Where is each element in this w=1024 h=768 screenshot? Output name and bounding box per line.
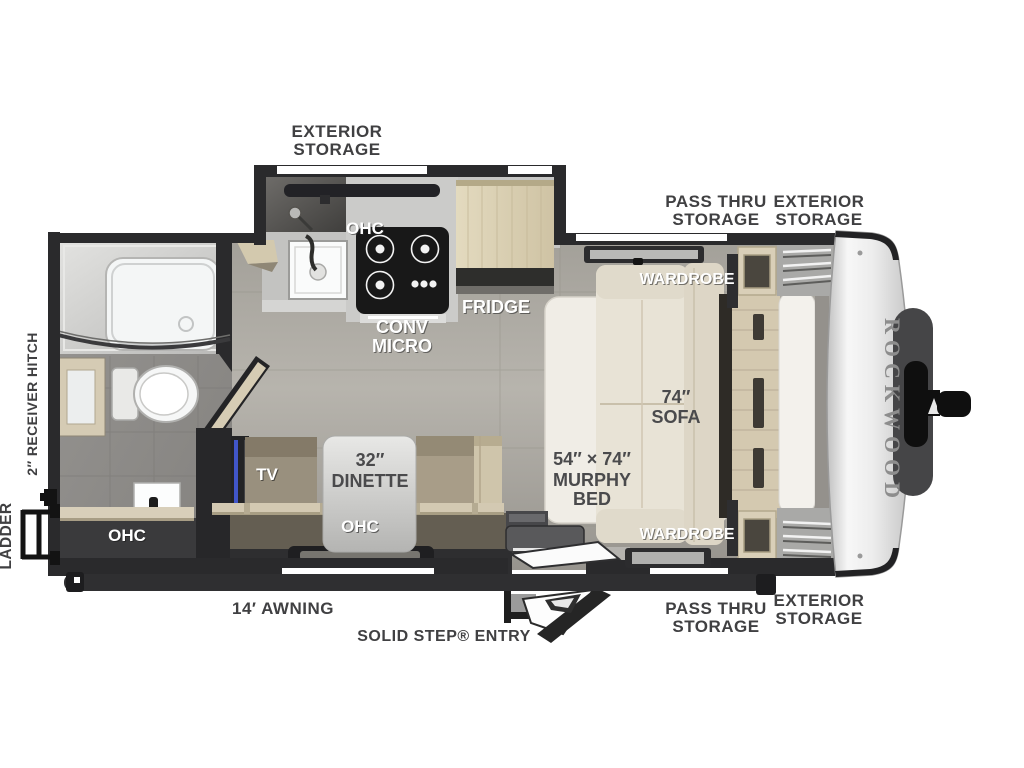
svg-text:MICRO: MICRO [372,336,432,356]
svg-text:STORAGE: STORAGE [775,609,862,628]
svg-text:OHC: OHC [346,219,384,238]
svg-text:DINETTE: DINETTE [331,471,408,491]
svg-text:EXTERIOR: EXTERIOR [774,192,865,211]
svg-text:MURPHY: MURPHY [553,470,631,490]
svg-text:EXTERIOR: EXTERIOR [774,591,865,610]
svg-text:32″: 32″ [356,450,385,470]
svg-text:74″: 74″ [662,387,691,407]
svg-text:WARDROBE: WARDROBE [639,526,734,543]
svg-text:14′ AWNING: 14′ AWNING [232,599,334,618]
svg-text:EXTERIOR: EXTERIOR [292,122,383,141]
svg-text:SOFA: SOFA [651,407,700,427]
svg-text:OHC: OHC [341,517,379,536]
svg-text:TV: TV [256,465,278,484]
svg-text:STORAGE: STORAGE [672,617,759,636]
svg-text:STORAGE: STORAGE [293,140,380,159]
svg-text:BED: BED [573,489,611,509]
svg-text:54″ × 74″: 54″ × 74″ [553,449,631,469]
svg-text:WARDROBE: WARDROBE [639,271,734,288]
svg-text:2″ RECEIVER HITCH: 2″ RECEIVER HITCH [24,332,40,475]
svg-text:PASS THRU: PASS THRU [665,599,766,618]
svg-text:OHC: OHC [108,526,146,545]
svg-text:LADDER: LADDER [0,503,15,570]
svg-text:FRIDGE: FRIDGE [462,297,530,317]
svg-text:CONV: CONV [376,317,428,337]
svg-text:STORAGE: STORAGE [672,210,759,229]
svg-text:STORAGE: STORAGE [775,210,862,229]
svg-text:PASS THRU: PASS THRU [665,192,766,211]
svg-text:SOLID STEP® ENTRY: SOLID STEP® ENTRY [357,628,531,645]
svg-text:ROCKWOOD: ROCKWOOD [880,318,905,504]
